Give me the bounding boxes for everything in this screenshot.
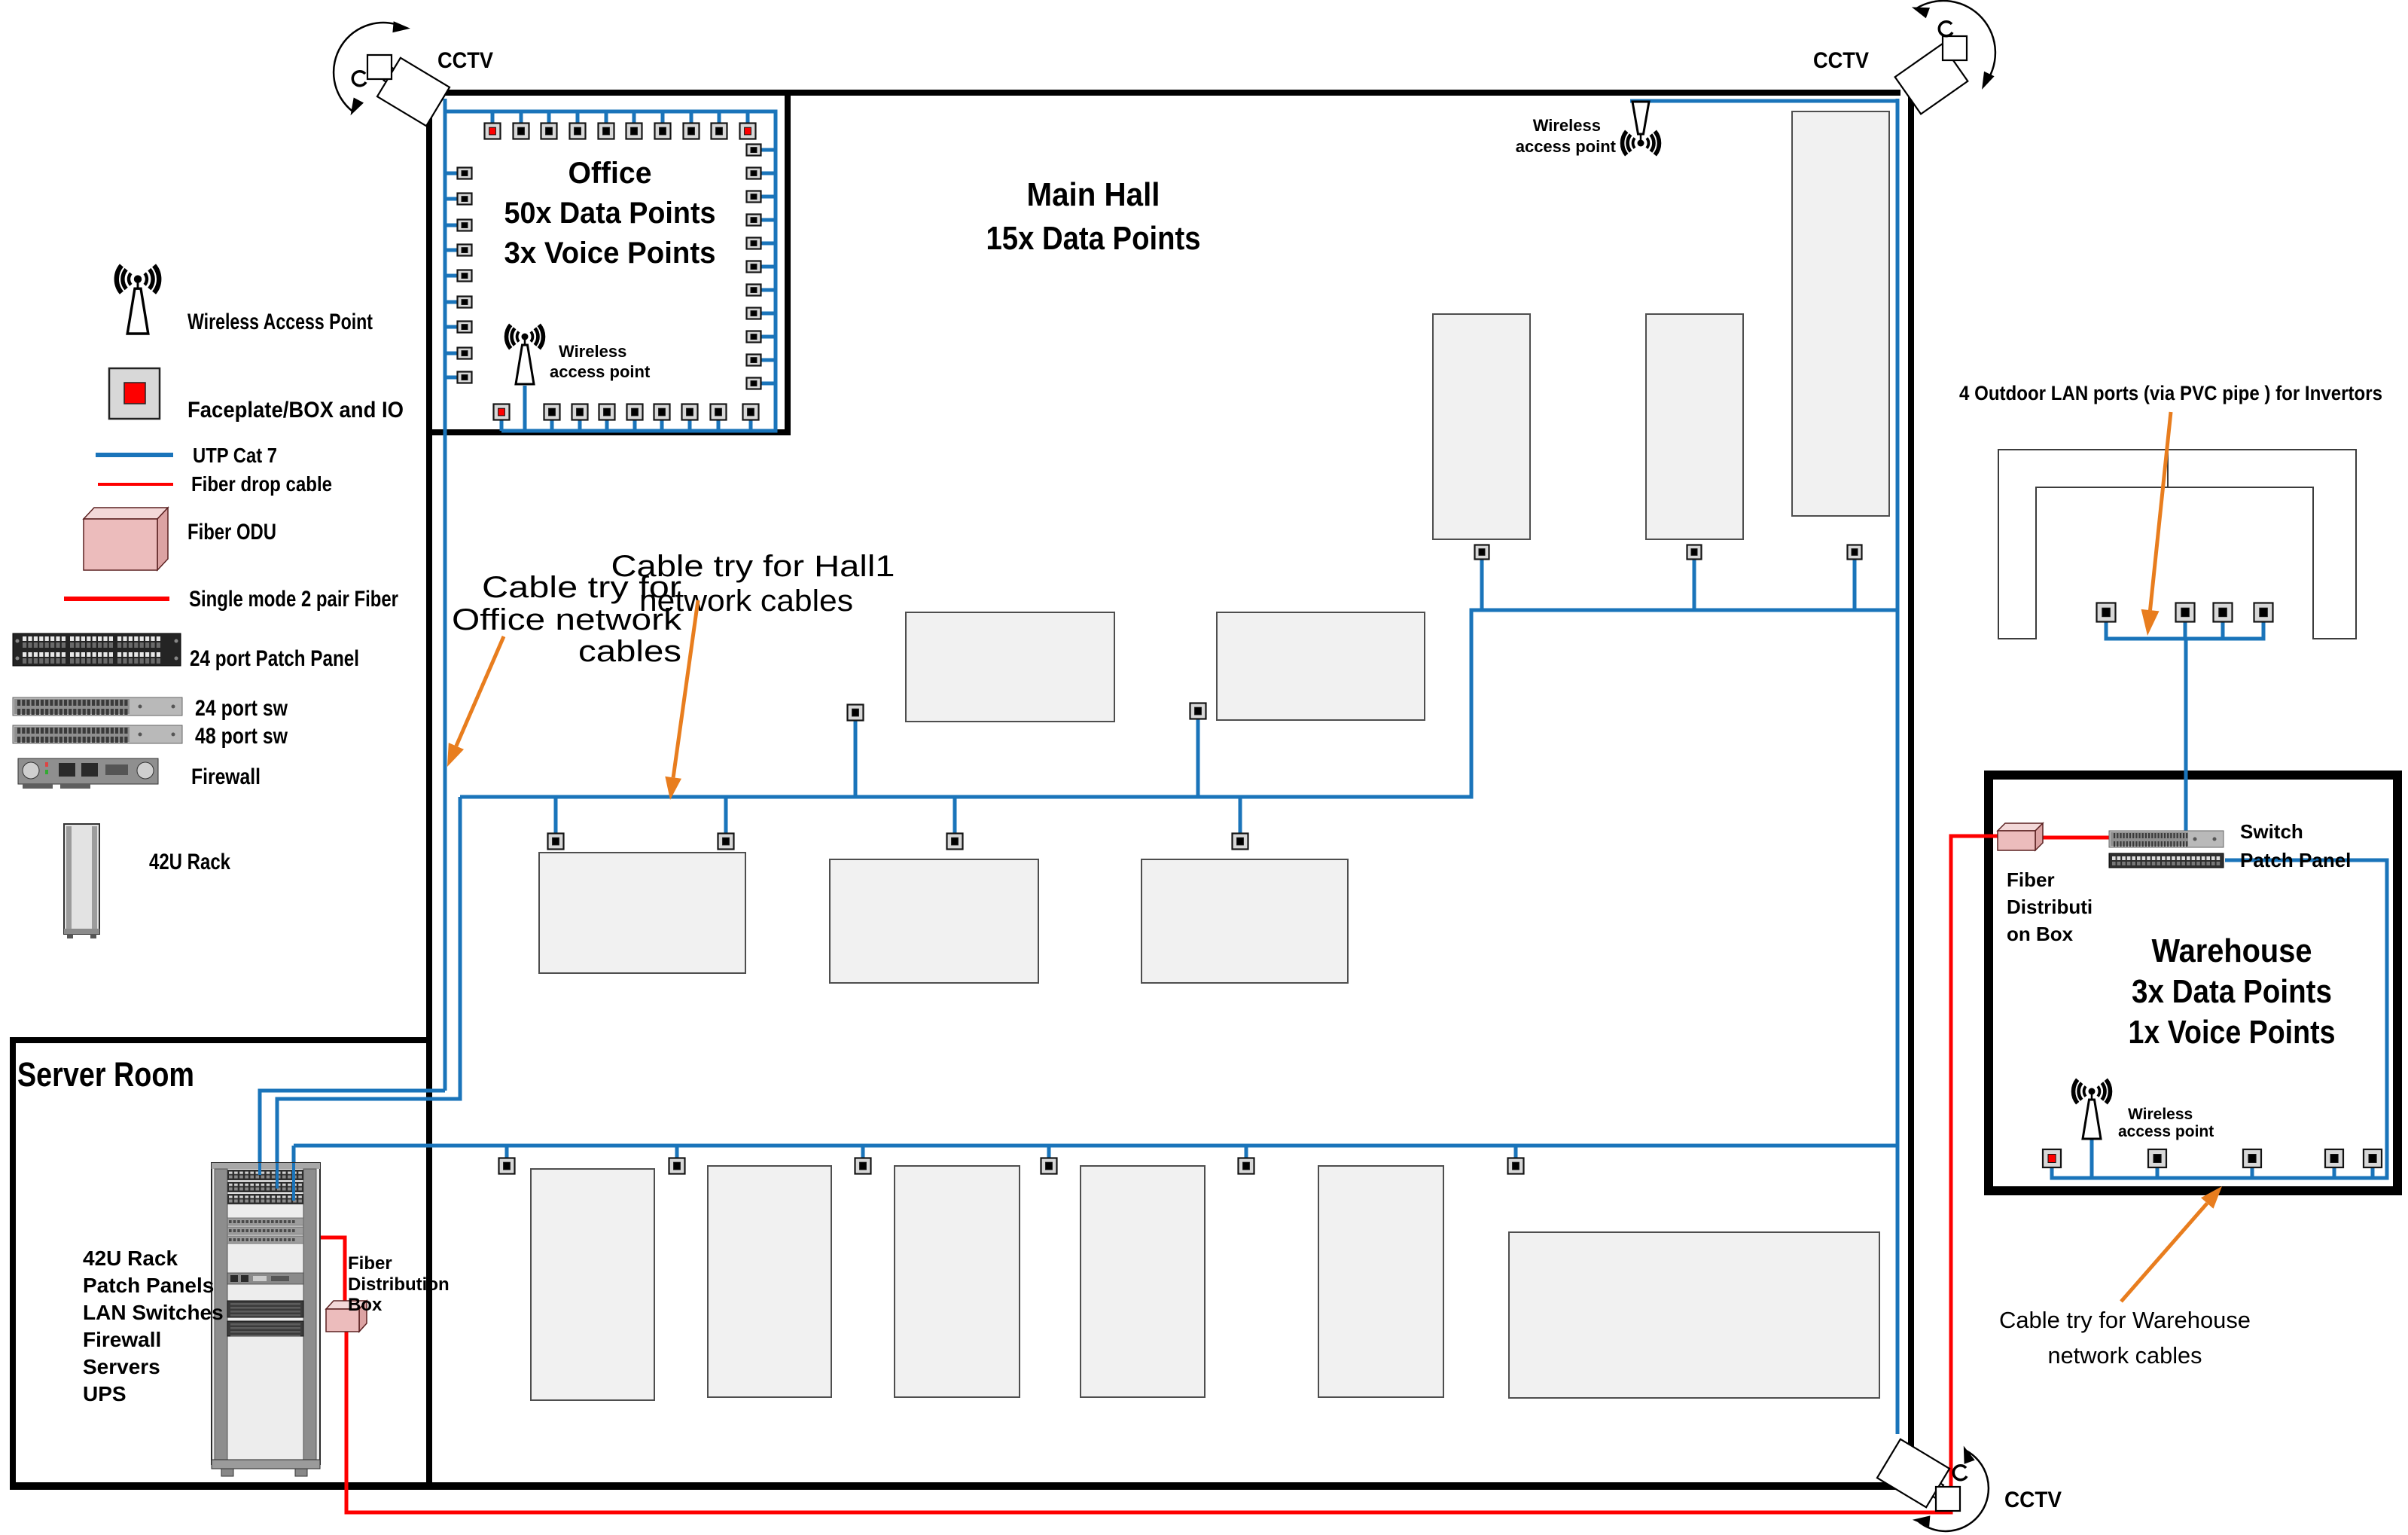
svg-text:Switch: Switch [2240, 820, 2303, 843]
svg-text:access point: access point [2118, 1123, 2214, 1140]
svg-text:Main Hall: Main Hall [1027, 176, 1160, 213]
svg-text:Patch Panel: Patch Panel [2240, 849, 2351, 871]
svg-text:CCTV: CCTV [1813, 48, 1869, 73]
svg-text:CCTV: CCTV [2004, 1488, 2062, 1512]
svg-text:Wireless: Wireless [1533, 116, 1601, 135]
svg-text:Servers: Servers [83, 1355, 160, 1378]
svg-text:Cable try for Warehouse: Cable try for Warehouse [1999, 1307, 2251, 1333]
svg-text:access point: access point [550, 362, 651, 381]
svg-text:network cables: network cables [2048, 1342, 2202, 1369]
svg-text:Firewall: Firewall [83, 1328, 161, 1351]
svg-text:Faceplate/BOX and IO: Faceplate/BOX and IO [187, 398, 404, 423]
svg-text:Fiber ODU: Fiber ODU [187, 520, 276, 545]
svg-text:Patch Panels: Patch Panels [83, 1274, 214, 1297]
svg-text:UTP Cat 7: UTP Cat 7 [193, 444, 277, 467]
svg-text:Wireless Access Point: Wireless Access Point [187, 310, 373, 334]
svg-text:15x Data Points: 15x Data Points [986, 220, 1201, 257]
svg-text:Single mode 2 pair Fiber: Single mode 2 pair Fiber [189, 587, 398, 612]
svg-text:50x Data Points: 50x Data Points [504, 197, 716, 230]
svg-text:42U Rack: 42U Rack [149, 850, 230, 874]
svg-text:24 port Patch Panel: 24 port Patch Panel [190, 646, 359, 671]
svg-text:LAN Switches: LAN Switches [83, 1301, 224, 1324]
svg-text:3x Voice Points: 3x Voice Points [504, 237, 716, 270]
svg-text:1x Voice Points: 1x Voice Points [2129, 1014, 2336, 1051]
svg-text:CCTV: CCTV [437, 48, 493, 73]
svg-text:Box: Box [348, 1295, 383, 1315]
svg-text:Wireless: Wireless [2128, 1106, 2193, 1123]
svg-text:Fiber: Fiber [2007, 868, 2055, 891]
svg-text:access point: access point [1516, 137, 1617, 156]
svg-text:24 port sw: 24 port sw [195, 696, 288, 721]
svg-text:Fiber: Fiber [348, 1253, 392, 1274]
svg-text:42U Rack: 42U Rack [83, 1247, 178, 1270]
svg-text:on Box: on Box [2007, 923, 2074, 945]
svg-text:Server Room: Server Room [17, 1055, 194, 1094]
svg-text:Distribution: Distribution [348, 1274, 450, 1295]
svg-text:Firewall: Firewall [191, 764, 261, 789]
svg-text:Office: Office [568, 157, 652, 190]
svg-text:network cables: network cables [639, 584, 853, 618]
svg-text:48 port sw: 48 port sw [195, 724, 288, 749]
svg-text:cables: cables [578, 635, 681, 668]
svg-text:Warehouse: Warehouse [2152, 932, 2312, 969]
svg-text:Fiber drop cable: Fiber drop cable [191, 472, 332, 496]
svg-text:Wireless: Wireless [559, 342, 626, 361]
svg-text:UPS: UPS [83, 1382, 126, 1405]
svg-text:4 Outdoor LAN ports (via PVC p: 4 Outdoor LAN ports (via PVC pipe ) for … [1959, 382, 2382, 404]
svg-text:Cable try for Hall1: Cable try for Hall1 [611, 550, 895, 583]
svg-text:Distributi: Distributi [2007, 896, 2093, 918]
svg-text:3x Data Points: 3x Data Points [2132, 973, 2332, 1010]
